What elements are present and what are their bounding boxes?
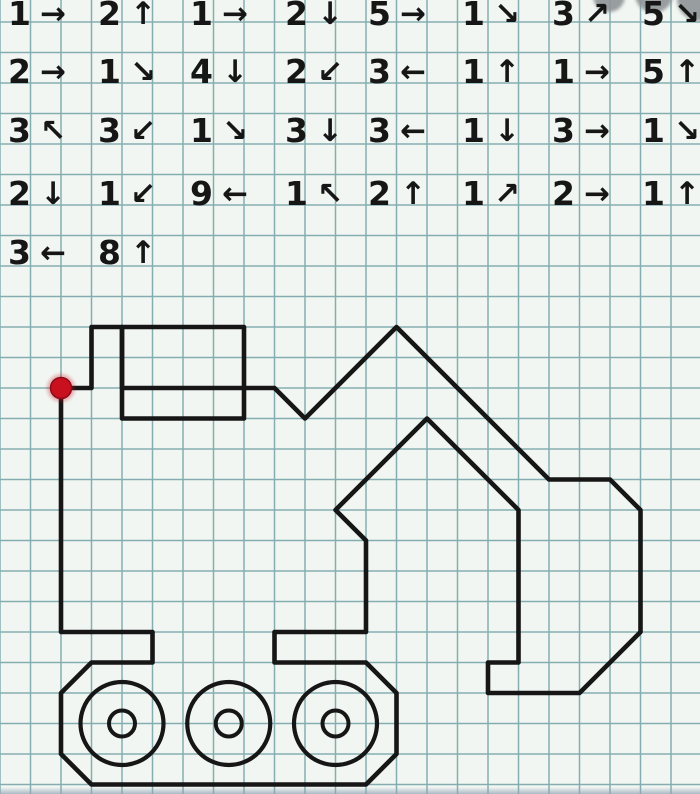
step-count: 3 xyxy=(98,114,121,148)
step-2-down: 2↓ xyxy=(8,177,66,211)
step-count: 2 xyxy=(285,55,308,89)
step-count: 1 xyxy=(98,55,121,89)
step-1-up-right: 1↗ xyxy=(462,177,520,211)
step-2-down-left: 2↙ xyxy=(285,55,343,89)
arrow-up-left-icon: ↖ xyxy=(40,114,66,148)
step-1-down-right: 1↘ xyxy=(642,114,700,148)
step-5-up: 5↑ xyxy=(642,55,700,89)
step-count: 2 xyxy=(8,55,31,89)
arrow-down-left-icon: ↙ xyxy=(317,55,343,89)
step-count: 1 xyxy=(462,177,485,211)
arrow-up-icon: ↑ xyxy=(674,55,700,89)
arrow-down-icon: ↓ xyxy=(317,114,343,148)
arrow-down-left-icon: ↙ xyxy=(130,114,156,148)
step-count: 1 xyxy=(642,177,665,211)
step-1-up: 1↑ xyxy=(642,177,700,211)
step-count: 3 xyxy=(552,114,575,148)
arrow-left-icon: ← xyxy=(40,236,66,270)
wheel-hub xyxy=(323,711,349,737)
wheel-outer xyxy=(294,682,377,765)
arrow-right-icon: → xyxy=(40,55,66,89)
step-3-left: 3← xyxy=(368,114,426,148)
arrow-up-icon: ↑ xyxy=(674,177,700,211)
step-count: 1 xyxy=(285,177,308,211)
step-3-left: 3← xyxy=(368,55,426,89)
step-4-down: 4↓ xyxy=(190,55,248,89)
step-count: 1 xyxy=(462,114,485,148)
photo-bottom-edge xyxy=(0,787,700,794)
step-1-right: 1→ xyxy=(8,0,66,31)
arrow-right-icon: → xyxy=(400,0,426,31)
step-count: 8 xyxy=(98,236,121,270)
step-count: 1 xyxy=(190,114,213,148)
arrow-down-right-icon: ↘ xyxy=(674,0,700,31)
step-count: 9 xyxy=(190,177,213,211)
step-3-up-left: 3↖ xyxy=(8,114,66,148)
start-dot xyxy=(51,378,72,399)
arrow-left-icon: ← xyxy=(400,114,426,148)
step-count: 1 xyxy=(462,0,485,31)
step-count: 5 xyxy=(642,0,665,31)
step-3-down: 3↓ xyxy=(285,114,343,148)
step-1-up-left: 1↖ xyxy=(285,177,343,211)
arrow-down-right-icon: ↘ xyxy=(130,55,156,89)
step-3-down-left: 3↙ xyxy=(98,114,156,148)
step-3-left: 3← xyxy=(8,236,66,270)
step-2-up: 2↑ xyxy=(368,177,426,211)
step-count: 1 xyxy=(462,55,485,89)
step-3-right: 3→ xyxy=(552,114,610,148)
step-count: 3 xyxy=(368,114,391,148)
step-2-up: 2↑ xyxy=(98,0,156,31)
step-5-down-right: 5↘ xyxy=(642,0,700,31)
arrow-down-right-icon: ↘ xyxy=(222,114,248,148)
step-count: 3 xyxy=(8,114,31,148)
arrow-down-icon: ↓ xyxy=(317,0,343,31)
step-count: 4 xyxy=(190,55,213,89)
step-count: 1 xyxy=(98,177,121,211)
step-1-right: 1→ xyxy=(190,0,248,31)
arrow-up-icon: ↑ xyxy=(494,55,520,89)
step-count: 3 xyxy=(285,114,308,148)
dictation-steps: 1→2↑1→2↓5→1↘3↗5↘2→1↘4↓2↙3←1↑1→5↑3↖3↙1↘3↓… xyxy=(0,0,700,280)
arrow-down-right-icon: ↘ xyxy=(494,0,520,31)
arrow-left-icon: ← xyxy=(222,177,248,211)
cab-window xyxy=(122,327,244,419)
step-count: 2 xyxy=(368,177,391,211)
step-2-right: 2→ xyxy=(8,55,66,89)
wheel-hub xyxy=(216,711,242,737)
step-5-right: 5→ xyxy=(368,0,426,31)
arrow-down-icon: ↓ xyxy=(222,55,248,89)
step-count: 5 xyxy=(368,0,391,31)
arrow-right-icon: → xyxy=(40,0,66,31)
step-1-right: 1→ xyxy=(552,55,610,89)
graph-paper-worksheet: 1→2↑1→2↓5→1↘3↗5↘2→1↘4↓2↙3←1↑1→5↑3↖3↙1↘3↓… xyxy=(0,0,700,794)
arrow-right-icon: → xyxy=(584,177,610,211)
wheel-outer xyxy=(187,682,270,765)
step-count: 2 xyxy=(98,0,121,31)
step-2-right: 2→ xyxy=(552,177,610,211)
arrow-up-left-icon: ↖ xyxy=(317,177,343,211)
step-count: 3 xyxy=(368,55,391,89)
arrow-down-icon: ↓ xyxy=(40,177,66,211)
step-9-left: 9← xyxy=(190,177,248,211)
step-2-down: 2↓ xyxy=(285,0,343,31)
step-count: 1 xyxy=(190,0,213,31)
step-1-down: 1↓ xyxy=(462,114,520,148)
step-count: 3 xyxy=(552,0,575,31)
step-count: 1 xyxy=(552,55,575,89)
arrow-up-icon: ↑ xyxy=(130,236,156,270)
step-1-down-right: 1↘ xyxy=(190,114,248,148)
step-count: 2 xyxy=(285,0,308,31)
step-count: 2 xyxy=(8,177,31,211)
arrow-up-icon: ↑ xyxy=(130,0,156,31)
excavator-outline xyxy=(61,327,641,785)
arrow-right-icon: → xyxy=(584,55,610,89)
step-3-up-right: 3↗ xyxy=(552,0,610,31)
step-count: 3 xyxy=(8,236,31,270)
arrow-down-left-icon: ↙ xyxy=(130,177,156,211)
step-8-up: 8↑ xyxy=(98,236,156,270)
wheel-hub xyxy=(109,711,135,737)
step-1-down-right: 1↘ xyxy=(462,0,520,31)
arrow-right-icon: → xyxy=(584,114,610,148)
arrow-right-icon: → xyxy=(222,0,248,31)
arrow-up-icon: ↑ xyxy=(400,177,426,211)
arrow-down-right-icon: ↘ xyxy=(674,114,700,148)
step-1-down-left: 1↙ xyxy=(98,177,156,211)
arrow-up-right-icon: ↗ xyxy=(494,177,520,211)
step-count: 1 xyxy=(642,114,665,148)
step-count: 5 xyxy=(642,55,665,89)
arrow-up-right-icon: ↗ xyxy=(584,0,610,31)
step-count: 2 xyxy=(552,177,575,211)
wheel-outer xyxy=(81,682,164,765)
arrow-down-icon: ↓ xyxy=(494,114,520,148)
step-count: 1 xyxy=(8,0,31,31)
step-1-down-right: 1↘ xyxy=(98,55,156,89)
step-1-up: 1↑ xyxy=(462,55,520,89)
arrow-left-icon: ← xyxy=(400,55,426,89)
